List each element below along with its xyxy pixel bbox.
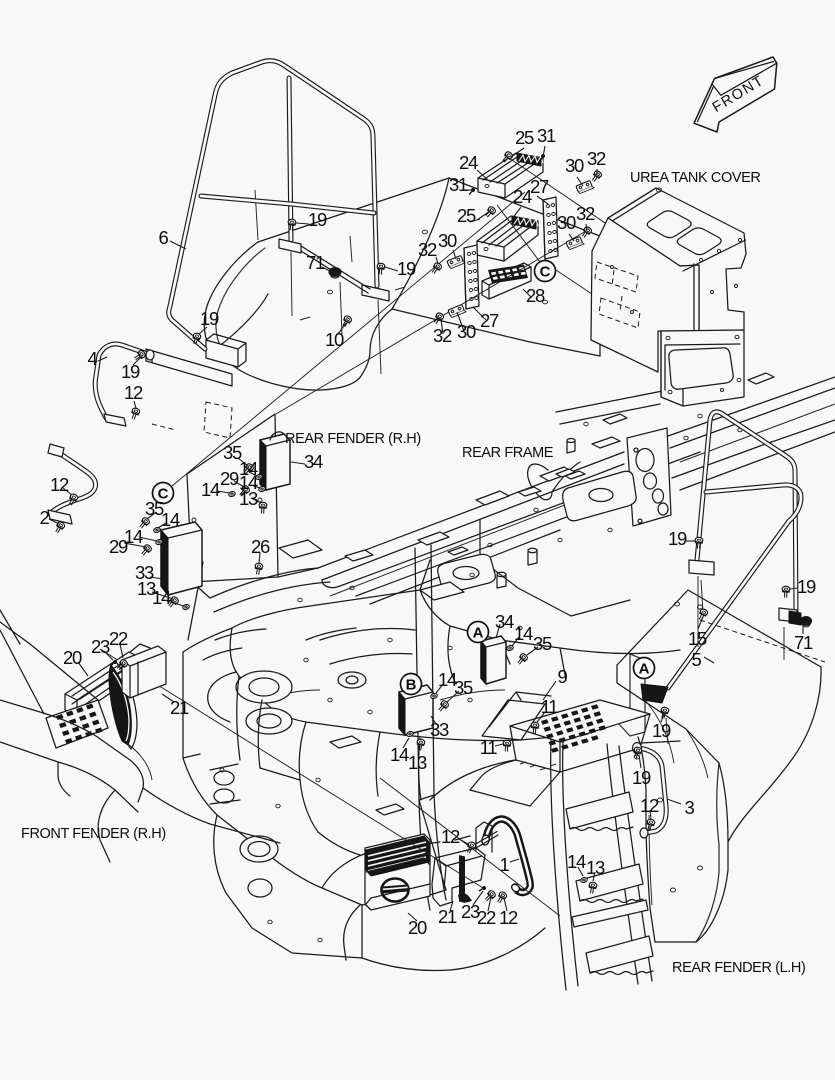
svg-text:34: 34: [304, 451, 323, 472]
svg-text:30: 30: [438, 230, 457, 251]
svg-text:32: 32: [587, 148, 606, 169]
svg-text:1: 1: [500, 854, 510, 875]
svg-text:14: 14: [201, 479, 220, 500]
svg-text:19: 19: [121, 361, 140, 382]
svg-text:14: 14: [124, 526, 143, 547]
svg-text:9: 9: [558, 666, 568, 687]
svg-text:B: B: [406, 677, 417, 694]
svg-text:19: 19: [797, 576, 816, 597]
svg-text:FRONT FENDER (R.H): FRONT FENDER (R.H): [21, 826, 166, 842]
svg-text:71: 71: [794, 632, 813, 653]
svg-text:27: 27: [480, 310, 499, 331]
svg-text:13: 13: [239, 488, 258, 509]
svg-text:14: 14: [161, 509, 180, 530]
svg-text:30: 30: [565, 155, 584, 176]
svg-text:33: 33: [430, 719, 449, 740]
svg-text:12: 12: [499, 907, 518, 928]
svg-text:21: 21: [438, 906, 457, 927]
svg-text:REAR FENDER (R.H): REAR FENDER (R.H): [285, 431, 421, 447]
svg-text:13: 13: [408, 752, 427, 773]
svg-text:30: 30: [457, 321, 476, 342]
svg-text:21: 21: [170, 697, 189, 718]
svg-text:32: 32: [418, 239, 437, 260]
svg-text:28: 28: [526, 285, 545, 306]
svg-text:3: 3: [685, 797, 695, 818]
svg-text:35: 35: [533, 633, 552, 654]
svg-text:12: 12: [124, 382, 143, 403]
svg-text:UREA TANK COVER: UREA TANK COVER: [630, 170, 760, 186]
svg-text:2: 2: [40, 507, 50, 528]
svg-text:REAR FRAME: REAR FRAME: [462, 445, 554, 461]
svg-text:11: 11: [480, 737, 498, 758]
svg-text:32: 32: [576, 203, 595, 224]
svg-text:11: 11: [541, 696, 559, 717]
svg-text:19: 19: [308, 209, 327, 230]
svg-text:C: C: [540, 264, 551, 281]
svg-text:12: 12: [640, 795, 659, 816]
svg-text:29: 29: [220, 468, 239, 489]
svg-text:23: 23: [91, 636, 110, 657]
svg-text:26: 26: [251, 536, 270, 557]
svg-text:A: A: [639, 661, 650, 678]
svg-text:24: 24: [513, 186, 532, 207]
svg-text:12: 12: [441, 826, 460, 847]
svg-text:35: 35: [454, 677, 473, 698]
svg-text:14: 14: [567, 851, 586, 872]
svg-text:4: 4: [88, 348, 98, 369]
svg-text:14: 14: [152, 587, 171, 608]
svg-text:14: 14: [390, 744, 409, 765]
svg-text:15: 15: [688, 628, 707, 649]
svg-text:20: 20: [63, 647, 82, 668]
svg-text:19: 19: [652, 720, 671, 741]
svg-text:19: 19: [397, 258, 416, 279]
svg-text:14: 14: [514, 623, 533, 644]
svg-text:31: 31: [449, 174, 468, 195]
svg-text:27: 27: [530, 176, 549, 197]
svg-text:34: 34: [495, 611, 514, 632]
svg-text:13: 13: [586, 857, 605, 878]
svg-text:5: 5: [692, 649, 702, 670]
svg-text:REAR FENDER (L.H): REAR FENDER (L.H): [672, 960, 805, 976]
svg-text:20: 20: [408, 917, 427, 938]
svg-text:22: 22: [477, 907, 496, 928]
svg-text:32: 32: [433, 325, 452, 346]
svg-text:19: 19: [632, 767, 651, 788]
svg-text:19: 19: [668, 528, 687, 549]
svg-text:6: 6: [159, 227, 169, 248]
svg-text:10: 10: [325, 329, 344, 350]
svg-text:24: 24: [459, 152, 478, 173]
svg-text:19: 19: [200, 308, 219, 329]
svg-text:25: 25: [457, 205, 476, 226]
svg-text:31: 31: [537, 125, 556, 146]
svg-text:12: 12: [50, 474, 69, 495]
svg-text:22: 22: [109, 628, 128, 649]
svg-text:25: 25: [515, 127, 534, 148]
svg-text:71: 71: [306, 252, 325, 273]
svg-text:30: 30: [557, 212, 576, 233]
svg-text:A: A: [473, 625, 484, 642]
